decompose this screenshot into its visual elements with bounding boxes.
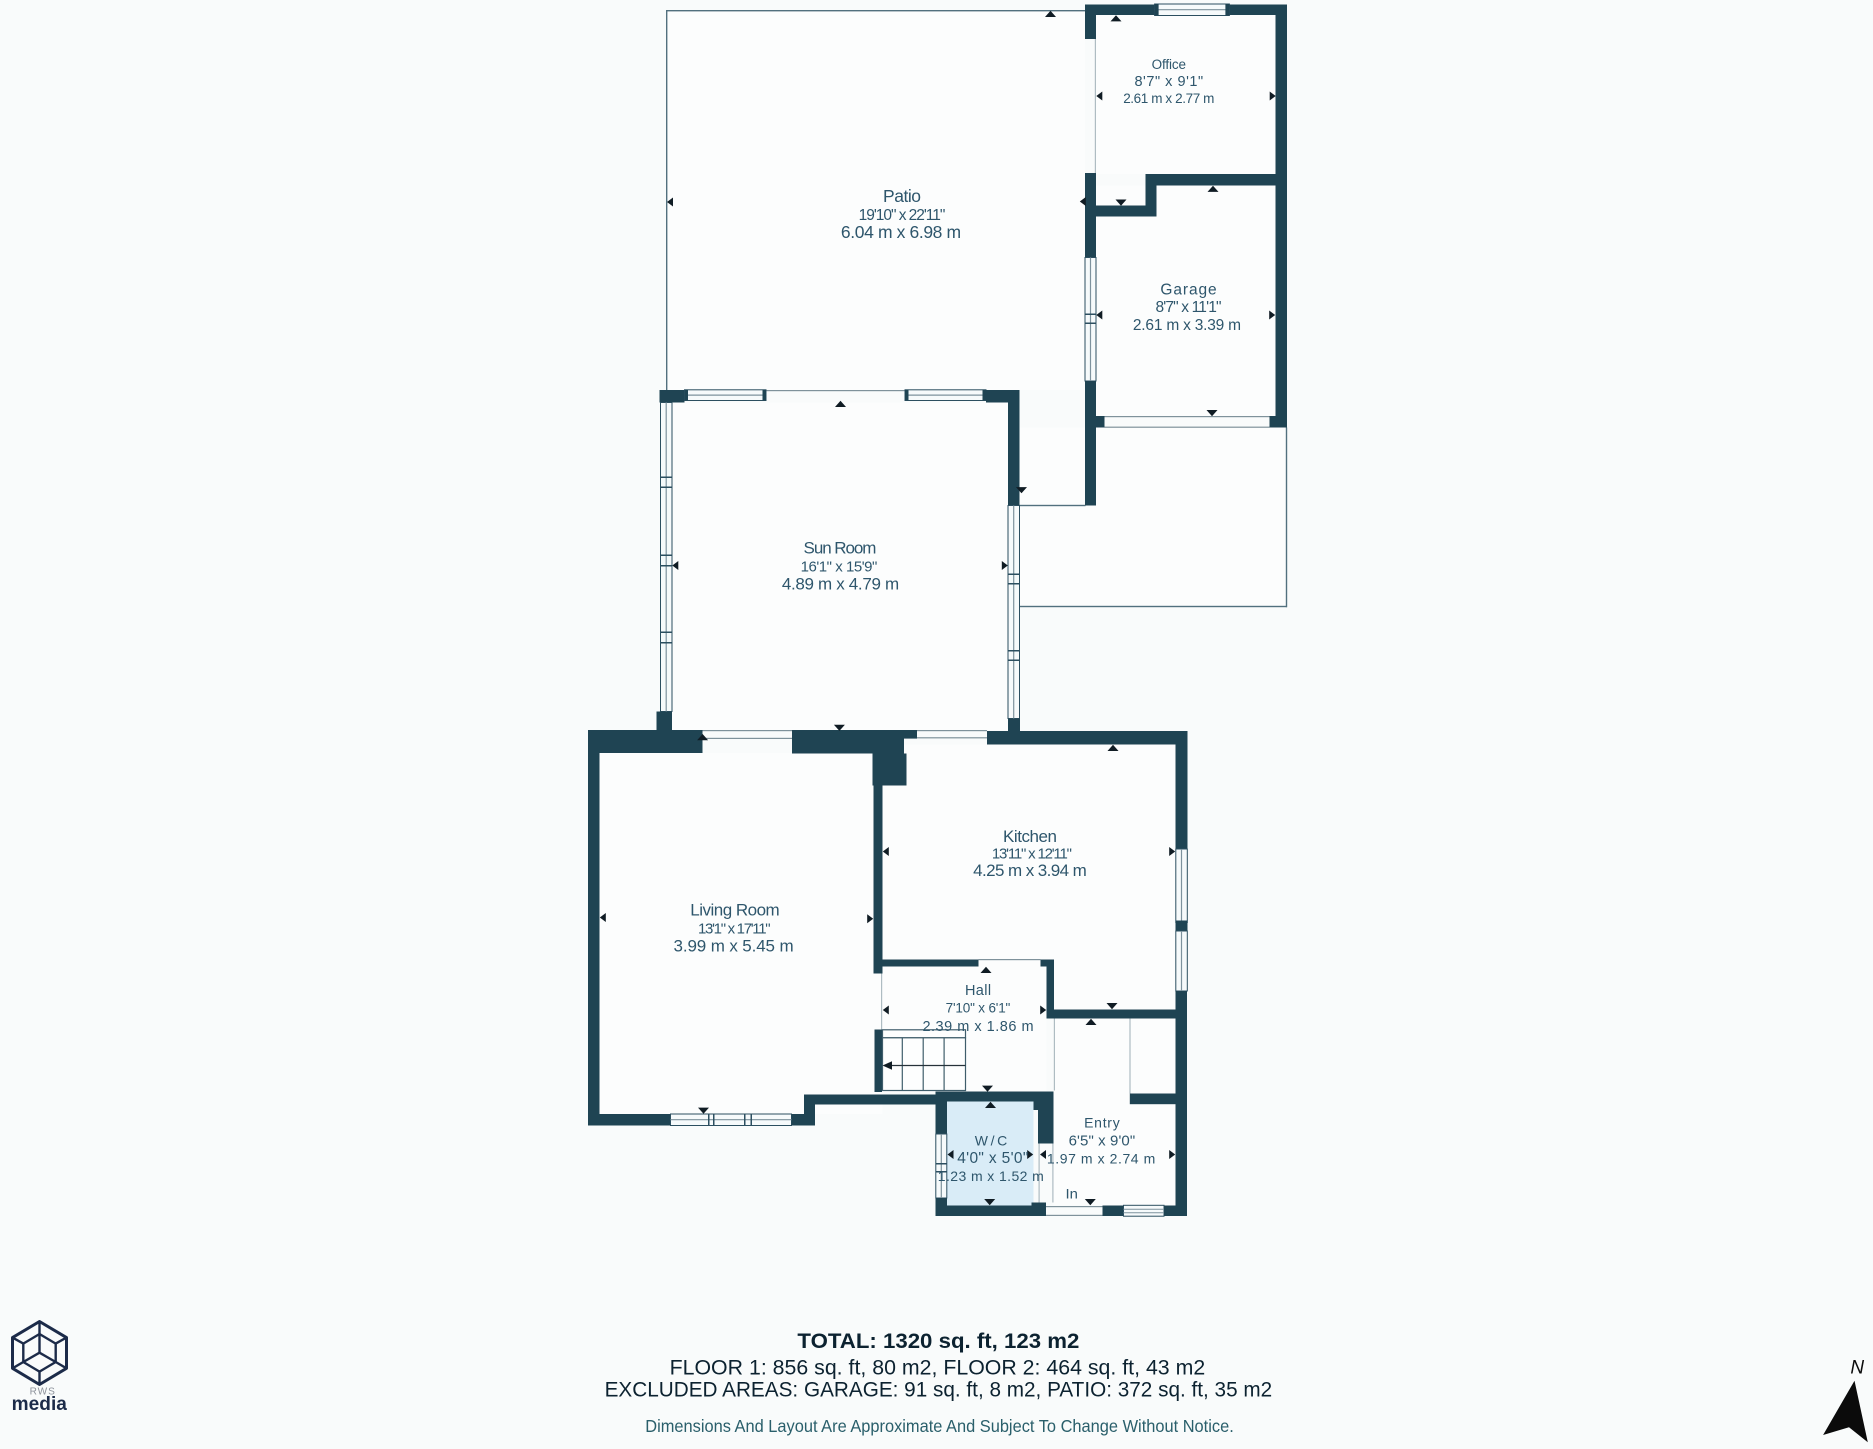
svg-text:EXCLUDED AREAS: GARAGE: 91 sq.: EXCLUDED AREAS: GARAGE: 91 sq. ft, 8 m2,… — [605, 1378, 1273, 1402]
svg-text:Patio: Patio — [883, 186, 921, 206]
svg-text:8'7" x 11'1": 8'7" x 11'1" — [1156, 299, 1222, 316]
svg-text:7'10" x 6'1": 7'10" x 6'1" — [946, 1001, 1011, 1016]
svg-text:Office: Office — [1152, 57, 1186, 72]
svg-text:2.39 m x 1.86 m: 2.39 m x 1.86 m — [922, 1019, 1033, 1035]
svg-text:6.04 m x 6.98 m: 6.04 m x 6.98 m — [841, 222, 961, 242]
svg-text:13'11" x 12'11": 13'11" x 12'11" — [992, 846, 1072, 863]
svg-text:3.99 m x 5.45 m: 3.99 m x 5.45 m — [674, 937, 794, 956]
svg-text:8'7" x 9'1": 8'7" x 9'1" — [1134, 74, 1203, 90]
svg-text:4'0" x 5'0": 4'0" x 5'0" — [957, 1150, 1028, 1167]
svg-text:1.23 m x 1.52 m: 1.23 m x 1.52 m — [938, 1168, 1044, 1184]
svg-text:1.97 m x 2.74 m: 1.97 m x 2.74 m — [1047, 1151, 1155, 1167]
svg-text:Garage: Garage — [1160, 282, 1216, 299]
svg-text:TOTAL: 1320 sq. ft, 123 m2: TOTAL: 1320 sq. ft, 123 m2 — [797, 1329, 1079, 1353]
svg-text:4.25 m x 3.94 m: 4.25 m x 3.94 m — [973, 861, 1087, 880]
svg-text:FLOOR 1: 856 sq. ft, 80 m2, FL: FLOOR 1: 856 sq. ft, 80 m2, FLOOR 2: 464… — [670, 1355, 1206, 1379]
svg-text:16'1" x 15'9": 16'1" x 15'9" — [801, 559, 878, 576]
svg-text:6'5" x 9'0": 6'5" x 9'0" — [1069, 1133, 1136, 1150]
svg-text:2.61 m x 3.39 m: 2.61 m x 3.39 m — [1133, 317, 1241, 334]
svg-text:In: In — [1066, 1186, 1078, 1202]
svg-text:W/C: W/C — [975, 1133, 1008, 1149]
svg-text:Living Room: Living Room — [690, 901, 779, 920]
svg-text:Hall: Hall — [965, 983, 991, 999]
svg-text:media: media — [12, 1394, 68, 1415]
svg-text:N: N — [1850, 1358, 1864, 1379]
svg-text:4.89 m x 4.79 m: 4.89 m x 4.79 m — [782, 575, 899, 594]
svg-text:Sun Room: Sun Room — [804, 539, 877, 558]
svg-text:Entry: Entry — [1084, 1115, 1120, 1131]
svg-text:13'1" x 17'11": 13'1" x 17'11" — [698, 921, 771, 938]
svg-text:Kitchen: Kitchen — [1003, 827, 1057, 846]
svg-text:Dimensions And Layout Are Appr: Dimensions And Layout Are Approximate An… — [645, 1416, 1234, 1436]
svg-text:2.61 m x 2.77 m: 2.61 m x 2.77 m — [1123, 91, 1214, 106]
